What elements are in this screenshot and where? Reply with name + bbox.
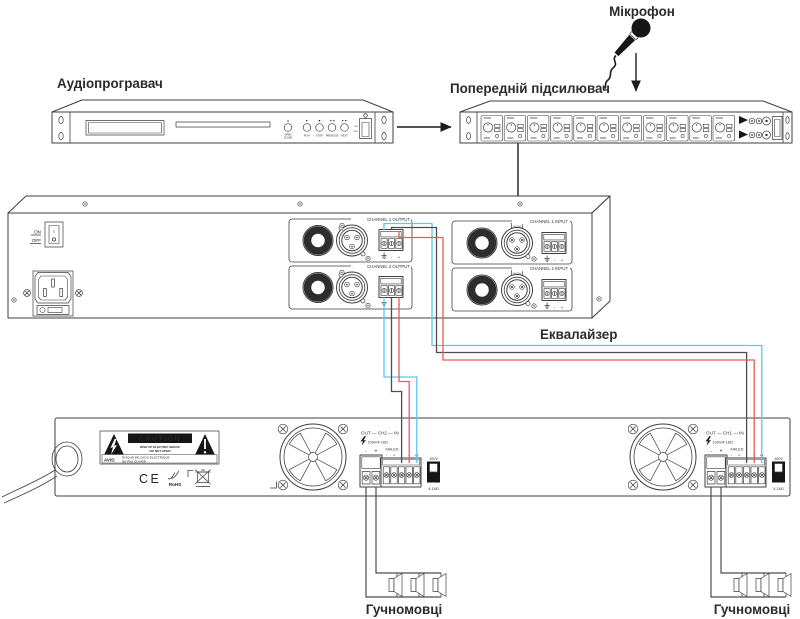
screw: [366, 256, 370, 260]
preamp-channel-strip: [690, 116, 712, 142]
speaker-wire-plus: [376, 487, 441, 573]
mic-handle: [615, 35, 636, 56]
terminal-block[interactable]: [379, 277, 403, 298]
eq-switch-i: I: [53, 229, 54, 234]
preamp-channel-strip: [713, 116, 735, 142]
amp-ch2-title: OUT — CH2 — IN: [361, 431, 399, 436]
eq-ch2-output-title: CHANNEL 2 OUTPUT: [367, 264, 410, 269]
amp-rating: 100V/4-16Ω: [368, 441, 389, 445]
player-power-off-label: OFF: [353, 131, 358, 133]
screw: [12, 298, 16, 302]
amp-rating: 100V/4-16Ω: [713, 441, 734, 445]
screw: [532, 257, 536, 261]
eject-icon: ▲: [287, 119, 290, 123]
screw: [76, 290, 83, 297]
preamp-channel-strip: [667, 116, 689, 142]
preamp-device: [460, 101, 792, 143]
mic-head: [632, 19, 651, 38]
preamp-top-face: [460, 101, 792, 112]
eq-ch1-input-title: CHANNEL 1 INPUT: [530, 219, 568, 224]
ce-mark: CE: [139, 472, 161, 486]
preamp-channel-strip: [481, 116, 503, 142]
screw: [597, 297, 601, 301]
eq-on-label: ON: [34, 230, 41, 235]
equalizer-rear-panel: [8, 213, 592, 318]
open-close-button[interactable]: [284, 124, 292, 132]
failed-label: FAILED: [385, 448, 398, 452]
screw: [366, 303, 370, 307]
speaker-line-left: [366, 487, 446, 597]
preamp-label: Попередній підсилювач: [450, 81, 610, 96]
eq-ch2-input-title: CHANNEL 2 INPUT: [530, 266, 568, 271]
switch-100v-label: 100V: [774, 457, 783, 461]
preamp-channel-strip: [551, 116, 573, 142]
equalizer-label: Еквалайзер: [540, 327, 617, 342]
horn-speaker: [778, 573, 791, 597]
preamp-channel-strip: [527, 116, 549, 142]
terminal-block[interactable]: [542, 233, 566, 254]
preamp-channel-strip: [504, 116, 526, 142]
stop-icon: ■: [319, 119, 321, 123]
jack-socket[interactable]: [303, 273, 333, 303]
speaker-out-terminal[interactable]: [360, 455, 382, 487]
speaker-out-terminal[interactable]: [705, 455, 727, 487]
player-disc-slot[interactable]: [176, 122, 270, 127]
next-button[interactable]: [341, 124, 349, 132]
next-icon: ►►: [342, 119, 348, 123]
caution-title: CAUTION: [139, 436, 181, 443]
stop-label: STOP: [316, 135, 323, 138]
avis-line2: NE PAS OUVRIR: [122, 460, 147, 464]
play-icon: ►: [306, 119, 309, 123]
screw: [532, 304, 536, 308]
preamp-channel-strip: [574, 116, 596, 142]
microphone-label: Мікрофон: [609, 4, 675, 19]
horn-speaker: [734, 573, 747, 597]
player-power-on-label: ON: [354, 126, 358, 128]
jack-socket[interactable]: [467, 275, 497, 305]
eq-ch1-output-title: CHANNEL 1 OUTPUT: [367, 217, 410, 222]
speakers-left-label: Гучномовці: [366, 602, 443, 617]
speaker-wire-minus: [366, 487, 441, 597]
previous-icon: ◄◄: [329, 119, 335, 123]
switch-ohm-label: 4-16Ω: [428, 487, 439, 491]
play-label: PLAY: [304, 135, 310, 138]
horn-speaker: [411, 573, 424, 597]
caution-line2: DO NOT OPEN: [149, 449, 170, 453]
out-plus: +: [720, 449, 723, 455]
microphone-icon: [605, 19, 651, 89]
screw: [83, 202, 87, 206]
preamp-channel-strip: [597, 116, 619, 142]
screw: [340, 223, 344, 227]
polarity-plus: +: [398, 255, 401, 260]
caution-label: CAUTION RISK OF ELECTRIC SHOCK DO NOT OP…: [100, 431, 219, 464]
eq-off-label: OFF: [32, 238, 41, 243]
out-plus: +: [375, 449, 378, 455]
xlr-female-connector[interactable]: [337, 272, 368, 303]
jack-socket[interactable]: [303, 226, 333, 256]
stop-button[interactable]: [316, 124, 324, 132]
audio-player-label: Аудіопрогравач: [57, 76, 163, 91]
polarity-plus: +: [561, 258, 564, 263]
preamp-channel-strip: [620, 116, 642, 142]
jack-socket[interactable]: [467, 228, 497, 258]
previous-button[interactable]: [328, 124, 336, 132]
player-top-face: [52, 100, 393, 112]
play-button[interactable]: [303, 124, 311, 132]
amplifier-device: CAUTION RISK OF ELECTRIC SHOCK DO NOT OP…: [2, 418, 790, 503]
speaker-line-right: [711, 487, 791, 597]
screw: [298, 202, 302, 206]
horn-speaker: [389, 573, 402, 597]
speaker-wire-plus: [721, 487, 786, 573]
switch-ohm-label: 4-16Ω: [773, 487, 784, 491]
horn-speaker: [756, 573, 769, 597]
xlr-female-connector[interactable]: [337, 225, 368, 256]
polarity-plus: +: [561, 305, 564, 310]
amp-ch1-title: OUT — CH1 — IN: [706, 431, 744, 436]
wiring-diagram: Мікрофон Аудіопрогравач Попередній підси…: [0, 0, 800, 619]
equalizer-device: ON OFF I - + CHANNEL 1 OUTPUT: [8, 196, 610, 318]
speaker-wire-minus: [711, 487, 786, 597]
screw: [24, 290, 31, 297]
push-label: PUSH: [513, 224, 520, 228]
push-label: PUSH: [513, 271, 520, 275]
preamp-channel-strip: [643, 116, 665, 142]
switch-100v-label: 100V: [429, 457, 438, 461]
audio-player-device: ▲ OPEN CLOSE ► PLAY ■ STOP ◄◄ PREVIOUS ►…: [52, 100, 393, 143]
terminal-block[interactable]: [542, 280, 566, 301]
avis-label: AVIS:: [104, 457, 116, 462]
rohs-text: RoHS: [169, 482, 182, 487]
horn-speaker: [433, 573, 446, 597]
next-label: NEXT: [341, 135, 348, 138]
previous-label: PREVIOUS: [326, 135, 339, 138]
screw: [340, 270, 344, 274]
failed-label: FAILED: [730, 448, 743, 452]
speakers-right-label: Гучномовці: [714, 602, 791, 617]
open-close-label2: CLOSE: [284, 136, 293, 139]
screw: [518, 202, 522, 206]
